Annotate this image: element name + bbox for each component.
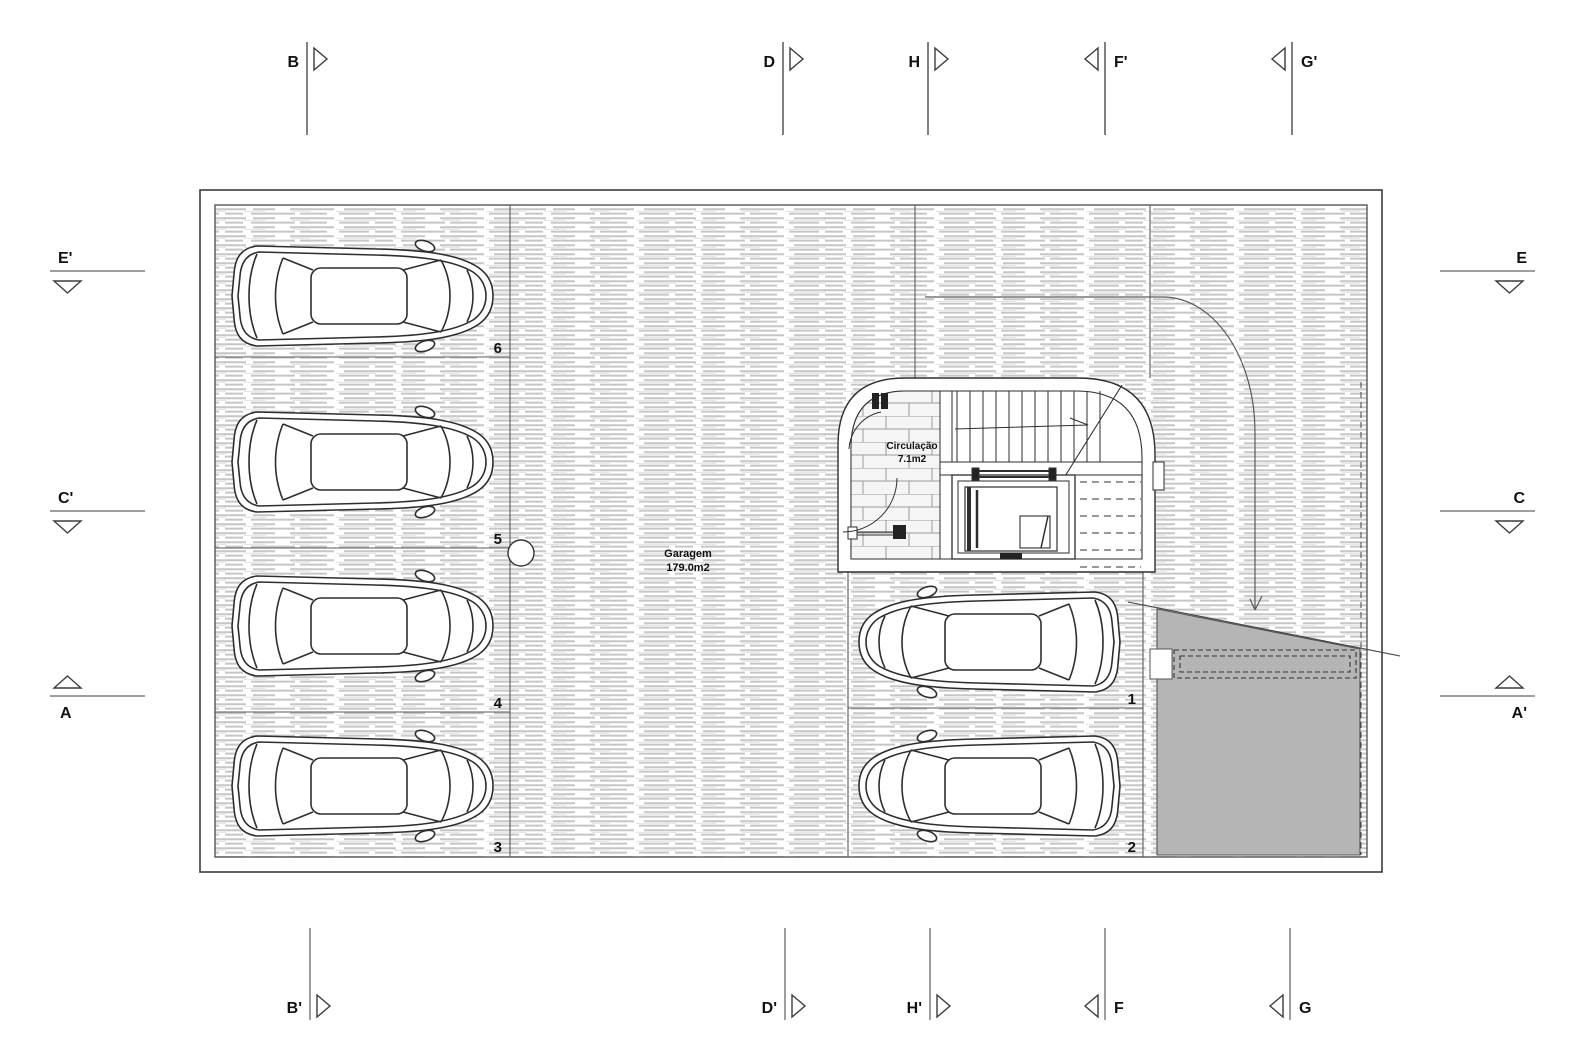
section-marker-A: A [50,676,145,722]
section-markers-bottom: B' D' H' F G [287,928,1312,1020]
svg-text:D': D' [762,1000,777,1017]
section-marker-B-prime: B' [287,928,330,1020]
svg-text:C: C [1513,490,1525,507]
ramp-wall-notch [1150,649,1172,679]
space-number-3: 3 [494,839,502,856]
space-number-4: 4 [494,695,503,712]
svg-text:G': G' [1301,54,1317,71]
svg-text:F: F [1114,1000,1124,1017]
svg-text:A': A' [1512,705,1527,722]
svg-text:G: G [1299,1000,1311,1017]
section-arrow-icon [1496,521,1523,533]
section-markers-right: E C A' [1440,250,1535,722]
structural-column [508,540,534,566]
section-marker-E: E [1440,250,1535,293]
svg-text:B': B' [287,1000,302,1017]
svg-text:D: D [763,54,775,71]
garage-room-area: 179.0m2 [666,562,709,574]
svg-text:B: B [287,54,299,71]
section-arrow-icon [314,48,327,70]
section-arrow-icon [1270,995,1283,1017]
wall-pilaster [1153,462,1164,490]
svg-text:C': C' [58,490,73,507]
section-arrow-icon [1496,281,1523,293]
circulation-room-name: Circulação [886,441,937,452]
section-arrow-icon [1085,48,1098,70]
section-arrow-icon [1272,48,1285,70]
stair-core: Circulação 7.1m2 [838,378,1164,572]
section-marker-G: G [1270,928,1311,1020]
floor-plan-drawing: Circulação 7.1m2 6 5 4 3 1 2 Garagem 179… [0,0,1572,1058]
section-arrow-icon [54,521,81,533]
section-arrow-icon [937,995,950,1017]
section-marker-F-prime: F' [1085,42,1128,135]
section-arrow-icon [54,281,81,293]
section-marker-F: F [1085,928,1124,1020]
section-arrow-icon [1496,676,1523,688]
door-jamb-bottom [893,525,906,539]
svg-text:H': H' [907,1000,922,1017]
space-number-1: 1 [1128,691,1136,708]
svg-text:E': E' [58,250,72,267]
section-marker-C: C [1440,490,1535,533]
section-marker-H: H [908,42,948,135]
section-marker-H-prime: H' [907,928,950,1020]
section-arrow-icon [317,995,330,1017]
ramp-slab [1157,609,1360,855]
svg-text:H: H [908,54,920,71]
door-jamb-top [872,393,879,409]
svg-text:F': F' [1114,54,1128,71]
section-marker-C-prime: C' [50,490,145,533]
section-markers-top: B D H F' G' [287,42,1317,135]
section-marker-D-prime: D' [762,928,805,1020]
section-marker-G-prime: G' [1272,42,1317,135]
space-number-6: 6 [494,340,502,357]
section-arrow-icon [935,48,948,70]
section-arrow-icon [792,995,805,1017]
section-markers-left: E' C' A [50,250,145,722]
section-arrow-icon [790,48,803,70]
partition-wall-horizontal [940,462,1142,475]
section-marker-D: D [763,42,803,135]
space-number-5: 5 [494,531,502,548]
section-arrow-icon [1085,995,1098,1017]
svg-text:A: A [60,705,72,722]
elevator-sill [1000,553,1022,559]
section-marker-E-prime: E' [50,250,145,293]
garage-room-name: Garagem [664,548,712,560]
section-marker-B: B [287,42,327,135]
floor-plan-sheet: Circulação 7.1m2 6 5 4 3 1 2 Garagem 179… [0,0,1572,1058]
elevator [952,468,1075,559]
space-number-2: 2 [1128,839,1136,856]
circulation-room-area: 7.1m2 [898,454,927,465]
section-arrow-icon [54,676,81,688]
svg-text:E: E [1516,250,1527,267]
section-marker-A-prime: A' [1440,676,1535,722]
